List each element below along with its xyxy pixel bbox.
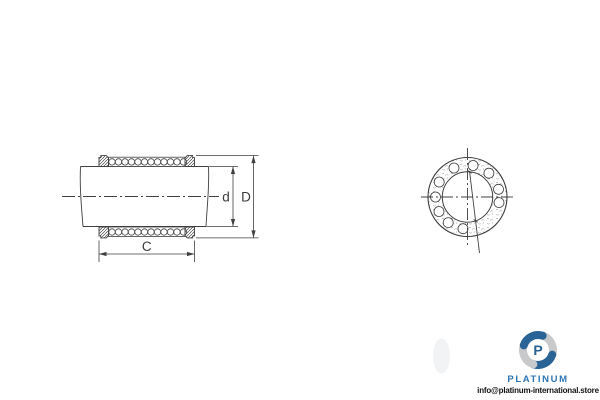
drawing-canvas: C d D <box>0 0 600 400</box>
brand-email: info@platinum-international.store <box>468 385 600 396</box>
logo-initial: P <box>533 342 542 358</box>
front-view <box>421 148 514 253</box>
brand-name: PLATINUM <box>468 374 600 385</box>
label-D: D <box>241 190 251 205</box>
faint-watermark-blob <box>433 339 450 374</box>
dimension-C: C <box>99 239 195 262</box>
bearing-top-row <box>109 157 187 166</box>
bearing-bottom-row <box>109 227 187 237</box>
label-C: C <box>142 239 152 254</box>
label-d: d <box>222 190 230 205</box>
platinum-swirl-icon: P <box>515 327 561 373</box>
platinum-logo: P PLATINUM info@platinum-international.s… <box>468 327 600 396</box>
side-view: C d D <box>62 156 259 262</box>
